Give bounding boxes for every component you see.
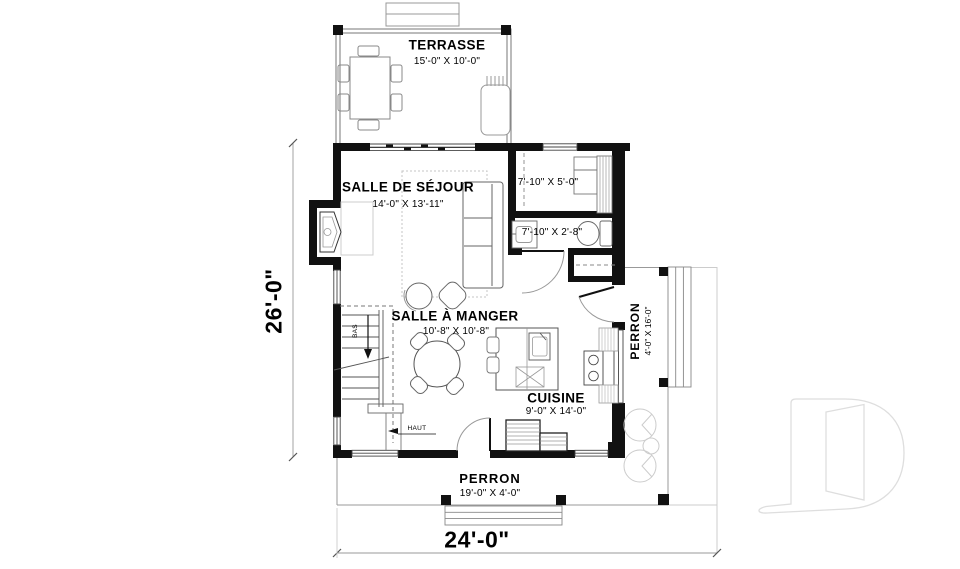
powder-room-door: [522, 251, 564, 293]
perron-bottom-dim: 19'-0" X 4'-0": [460, 488, 520, 501]
sliding-door: [370, 144, 475, 151]
floor-plan: TERRASSE 15'-0" X 10'-0" SALLE DE SÉJOUR…: [0, 0, 960, 569]
dining-table-set: [408, 330, 466, 396]
perron-right-dim: 4'-0" X 16'-0": [643, 302, 654, 359]
terrace-table-set: [338, 46, 402, 130]
stairs-down-label: BAS: [352, 324, 360, 338]
armchair: [404, 283, 432, 311]
kitchen-sink-icon: [529, 333, 550, 360]
porch-door: [457, 418, 490, 451]
right-porch-steps: [668, 267, 691, 387]
perron-right-name: PERRON: [628, 302, 643, 359]
terrace-post: [333, 25, 343, 35]
stair-down-arrow: [364, 349, 372, 359]
terrasse-dim: 15'-0" X 10'-0": [414, 56, 480, 69]
terrace: [333, 3, 511, 143]
stool: [487, 337, 499, 353]
manger-dim: 10'-8" X 10'-8": [423, 326, 489, 339]
stool: [487, 357, 499, 373]
sejour-dim: 14'-0" X 13'-11": [372, 199, 443, 212]
entry-steps: [506, 420, 567, 451]
kitchen-fixtures: [487, 328, 618, 451]
mudroom-dim: 7'-10" X 5'-0": [518, 177, 578, 190]
stove-icon: [584, 351, 603, 385]
window: [575, 450, 608, 456]
cuisine-dim: 9'-0" X 14'-0": [526, 406, 586, 419]
mudroom-lockers: [597, 156, 612, 213]
window: [334, 417, 340, 445]
front-door: [579, 287, 614, 322]
patio-chairs: [624, 409, 659, 482]
stairs-up-label: HAUT: [408, 425, 427, 433]
window: [352, 450, 398, 456]
manger-label: SALLE À MANGER: [391, 309, 518, 326]
window: [543, 144, 577, 150]
bottom-porch-steps: [445, 506, 562, 525]
terrace-lounge-chair: [481, 76, 510, 135]
toilet-icon: [577, 221, 612, 246]
sejour-label: SALLE DE SÉJOUR: [342, 180, 474, 197]
brand-watermark: [759, 399, 904, 513]
fireplace-icon: [320, 202, 373, 255]
powder-dim: 7'-10" X 2'-8": [522, 227, 582, 240]
terrace-post: [501, 25, 511, 35]
overall-height-dim: 26'-0": [260, 268, 289, 333]
perron-right-label: PERRON 4'-0" X 16'-0": [628, 302, 654, 359]
window: [334, 270, 340, 304]
perron-bottom-label: PERRON: [459, 471, 521, 487]
overall-width-dim: 24'-0": [444, 526, 509, 555]
sofa: [463, 182, 503, 288]
terrasse-label: TERRASSE: [409, 38, 486, 55]
